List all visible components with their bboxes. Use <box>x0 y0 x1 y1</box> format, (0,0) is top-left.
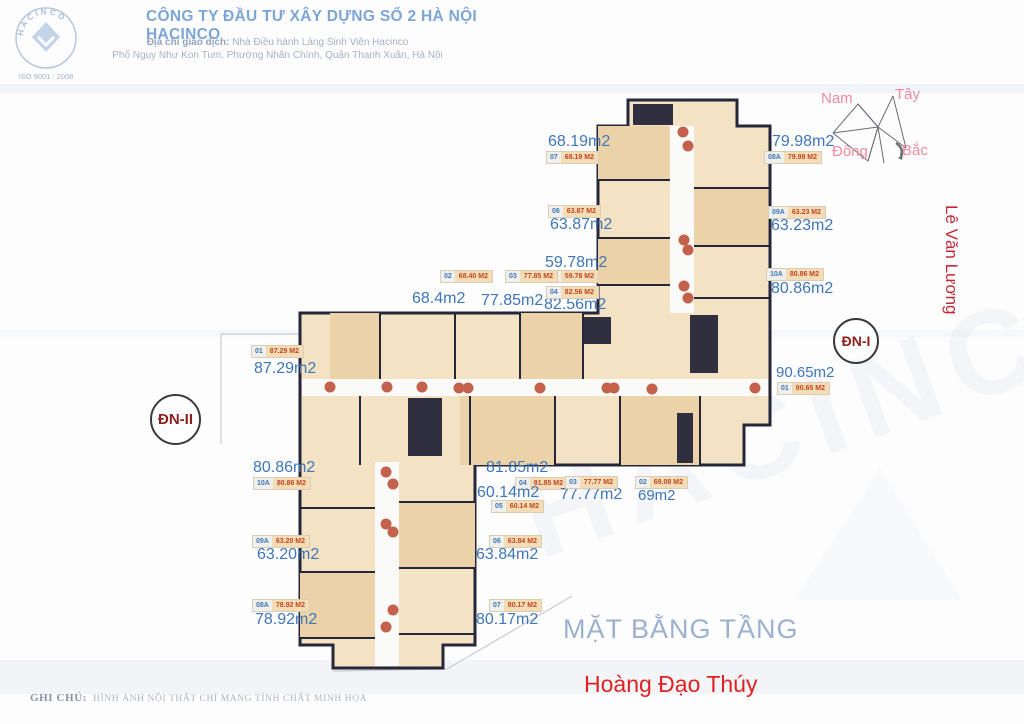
apartment-area-label: 63.20m2 <box>257 547 319 563</box>
apartment-area-label: 80.86m2 <box>771 281 833 297</box>
address-label: Địa chỉ giao dịch: <box>147 37 230 48</box>
apartment-tag-area: 60.14 M2 <box>506 501 543 512</box>
apartment-tag-area: 82.56 M2 <box>561 287 598 298</box>
plan-title: MẶT BẰNG TẦNG <box>563 614 799 645</box>
apartment-area-label: 77.85m2 <box>481 293 543 309</box>
watermark-diamond <box>795 468 962 600</box>
apartment-tag-area: 68.40 M2 <box>455 271 492 282</box>
apartment-unit: 07 <box>547 152 561 163</box>
apartment-unit: 02 <box>636 477 650 488</box>
apartment-area-label: 90.65m2 <box>776 365 834 380</box>
apartment-tag: 0482.56 M2 <box>546 286 599 299</box>
street-name-le-van-luong: Lê Văn Lương <box>941 205 961 365</box>
apartment-area-label: 77.77m2 <box>560 487 622 503</box>
apartment-tag-area: 78.92 M2 <box>272 600 309 611</box>
apartment-tag-area: 63.23 M2 <box>788 207 825 218</box>
apartment-tag-area: 90.65 M2 <box>792 383 829 394</box>
apartment-area-label: 69m2 <box>638 488 676 503</box>
apartment-tag: 0663.87 M2 <box>548 205 601 218</box>
apartment-area-label: 80.86m2 <box>253 460 315 476</box>
apartment-area-label: 79.98m2 <box>772 134 834 150</box>
footer-note-label: GHI CHÚ: <box>30 692 87 704</box>
address-line-2: Phố Ngụy Như Kon Tum, Phường Nhân Chính,… <box>105 49 450 62</box>
apartment-tag: 0377.85 M2 <box>505 270 558 283</box>
entrance-badge-dn2: ĐN-II <box>150 394 201 445</box>
entrance-badge-dn1: ĐN-I <box>833 318 879 364</box>
apartment-tag: 0560.14 M2 <box>491 500 544 513</box>
apartment-unit: 05 <box>492 501 506 512</box>
compass-west-label: Tây <box>895 86 920 103</box>
apartment-tag-area: 87.29 M2 <box>266 346 303 357</box>
apartment-unit: 01 <box>252 346 266 357</box>
apartment-tag-area: 63.84 M2 <box>504 536 541 547</box>
apartment-unit: 03 <box>566 477 580 488</box>
apartment-tag-area: 80.86 M2 <box>786 269 823 280</box>
apartment-tag-area: 77.85 M2 <box>520 271 557 282</box>
apartment-tag: 09A63.20 M2 <box>252 535 310 548</box>
compass-east-label: Đông <box>832 143 868 160</box>
logo-diamond <box>32 22 60 52</box>
apartment-area-label: 82.56m2 <box>544 297 606 313</box>
apartment-area-label: 68.4m2 <box>412 291 465 307</box>
apartment-tag: 0377.77 M2 <box>565 476 618 489</box>
apartment-tag-area: 68.19 M2 <box>561 152 598 163</box>
apartment-unit: 08A <box>253 600 272 611</box>
apartment-unit: 06 <box>490 536 504 547</box>
compass-south-label: Nam <box>821 90 853 107</box>
apartment-unit: 08A <box>765 152 784 163</box>
apartment-area-label: 63.84m2 <box>476 547 538 563</box>
address-line-1: Địa chỉ giao dịch: Nhà Điều hành Làng Si… <box>105 36 450 49</box>
apartment-unit: 04 <box>547 287 561 298</box>
apartment-area-label: 80.17m2 <box>476 612 538 628</box>
apartment-unit: 10A <box>767 269 786 280</box>
address-rest: Nhà Điều hành Làng Sinh Viên Hacinco <box>229 37 408 48</box>
apartment-unit: 09A <box>769 207 788 218</box>
apartment-tag-area: 80.86 M2 <box>273 478 310 489</box>
apartment-tag: 0187.29 M2 <box>251 345 304 358</box>
apartment-unit: 07 <box>490 600 504 611</box>
apartment-area-label: 60.14m2 <box>477 485 539 501</box>
apartment-tag: 0269.08 M2 <box>635 476 688 489</box>
apartment-tag: 08A79.98 M2 <box>764 151 822 164</box>
apartment-tag: 08A78.92 M2 <box>252 599 310 612</box>
apartment-area-label: 63.87m2 <box>550 217 612 233</box>
apartment-tag: 10A80.86 M2 <box>253 477 311 490</box>
apartment-unit: 02 <box>441 271 455 282</box>
street-name-hoang-dao-thuy: Hoàng Đạo Thúy <box>584 671 757 698</box>
apartment-area-label: 78.92m2 <box>255 612 317 628</box>
apartment-tag: 10A80.86 M2 <box>766 268 824 281</box>
footer-note: GHI CHÚ:HÌNH ẢNH NỘI THẤT CHỈ MANG TÍNH … <box>30 692 367 704</box>
apartment-tag-area: 59.78 M2 <box>561 271 598 282</box>
apartment-tag: 0768.19 M2 <box>546 151 599 164</box>
apartment-unit: 01 <box>778 383 792 394</box>
compass-north-label: Bắc <box>902 142 928 159</box>
apartment-tag-area: 63.87 M2 <box>563 206 600 217</box>
hacinco-logo: HACINCO ISO 9001 : 2008 <box>10 2 82 84</box>
apartment-area-label: 59.78m2 <box>545 255 607 271</box>
apartment-tag: 0663.84 M2 <box>489 535 542 548</box>
apartment-area-label: 63.23m2 <box>771 218 833 234</box>
apartment-tag-area: 79.98 M2 <box>784 152 821 163</box>
apartment-area-label: 87.29m2 <box>254 361 316 377</box>
apartment-unit: 06 <box>549 206 563 217</box>
apartment-tag-area: 77.77 M2 <box>580 477 617 488</box>
logo-iso-text: ISO 9001 : 2008 <box>19 72 74 81</box>
apartment-tag-area: 63.20 M2 <box>272 536 309 547</box>
apartment-tag-area: 80.17 M2 <box>504 600 541 611</box>
apartment-unit: 09A <box>253 536 272 547</box>
apartment-tag: 09A63.23 M2 <box>768 206 826 219</box>
address-block: Địa chỉ giao dịch: Nhà Điều hành Làng Si… <box>105 36 450 62</box>
page: HACINCO <box>0 0 1024 724</box>
apartment-unit: 10A <box>254 478 273 489</box>
apartment-area-label: 81.85m2 <box>486 460 548 476</box>
apartment-area-label: 68.19m2 <box>548 134 610 150</box>
apartment-tag: 0190.65 M2 <box>777 382 830 395</box>
apartment-tag-area: 69.08 M2 <box>650 477 687 488</box>
apartment-tag: 0780.17 M2 <box>489 599 542 612</box>
apartment-unit: 03 <box>506 271 520 282</box>
apartment-tag: 0268.40 M2 <box>440 270 493 283</box>
footer-note-text: HÌNH ẢNH NỘI THẤT CHỈ MANG TÍNH CHẤT MIN… <box>93 694 367 704</box>
